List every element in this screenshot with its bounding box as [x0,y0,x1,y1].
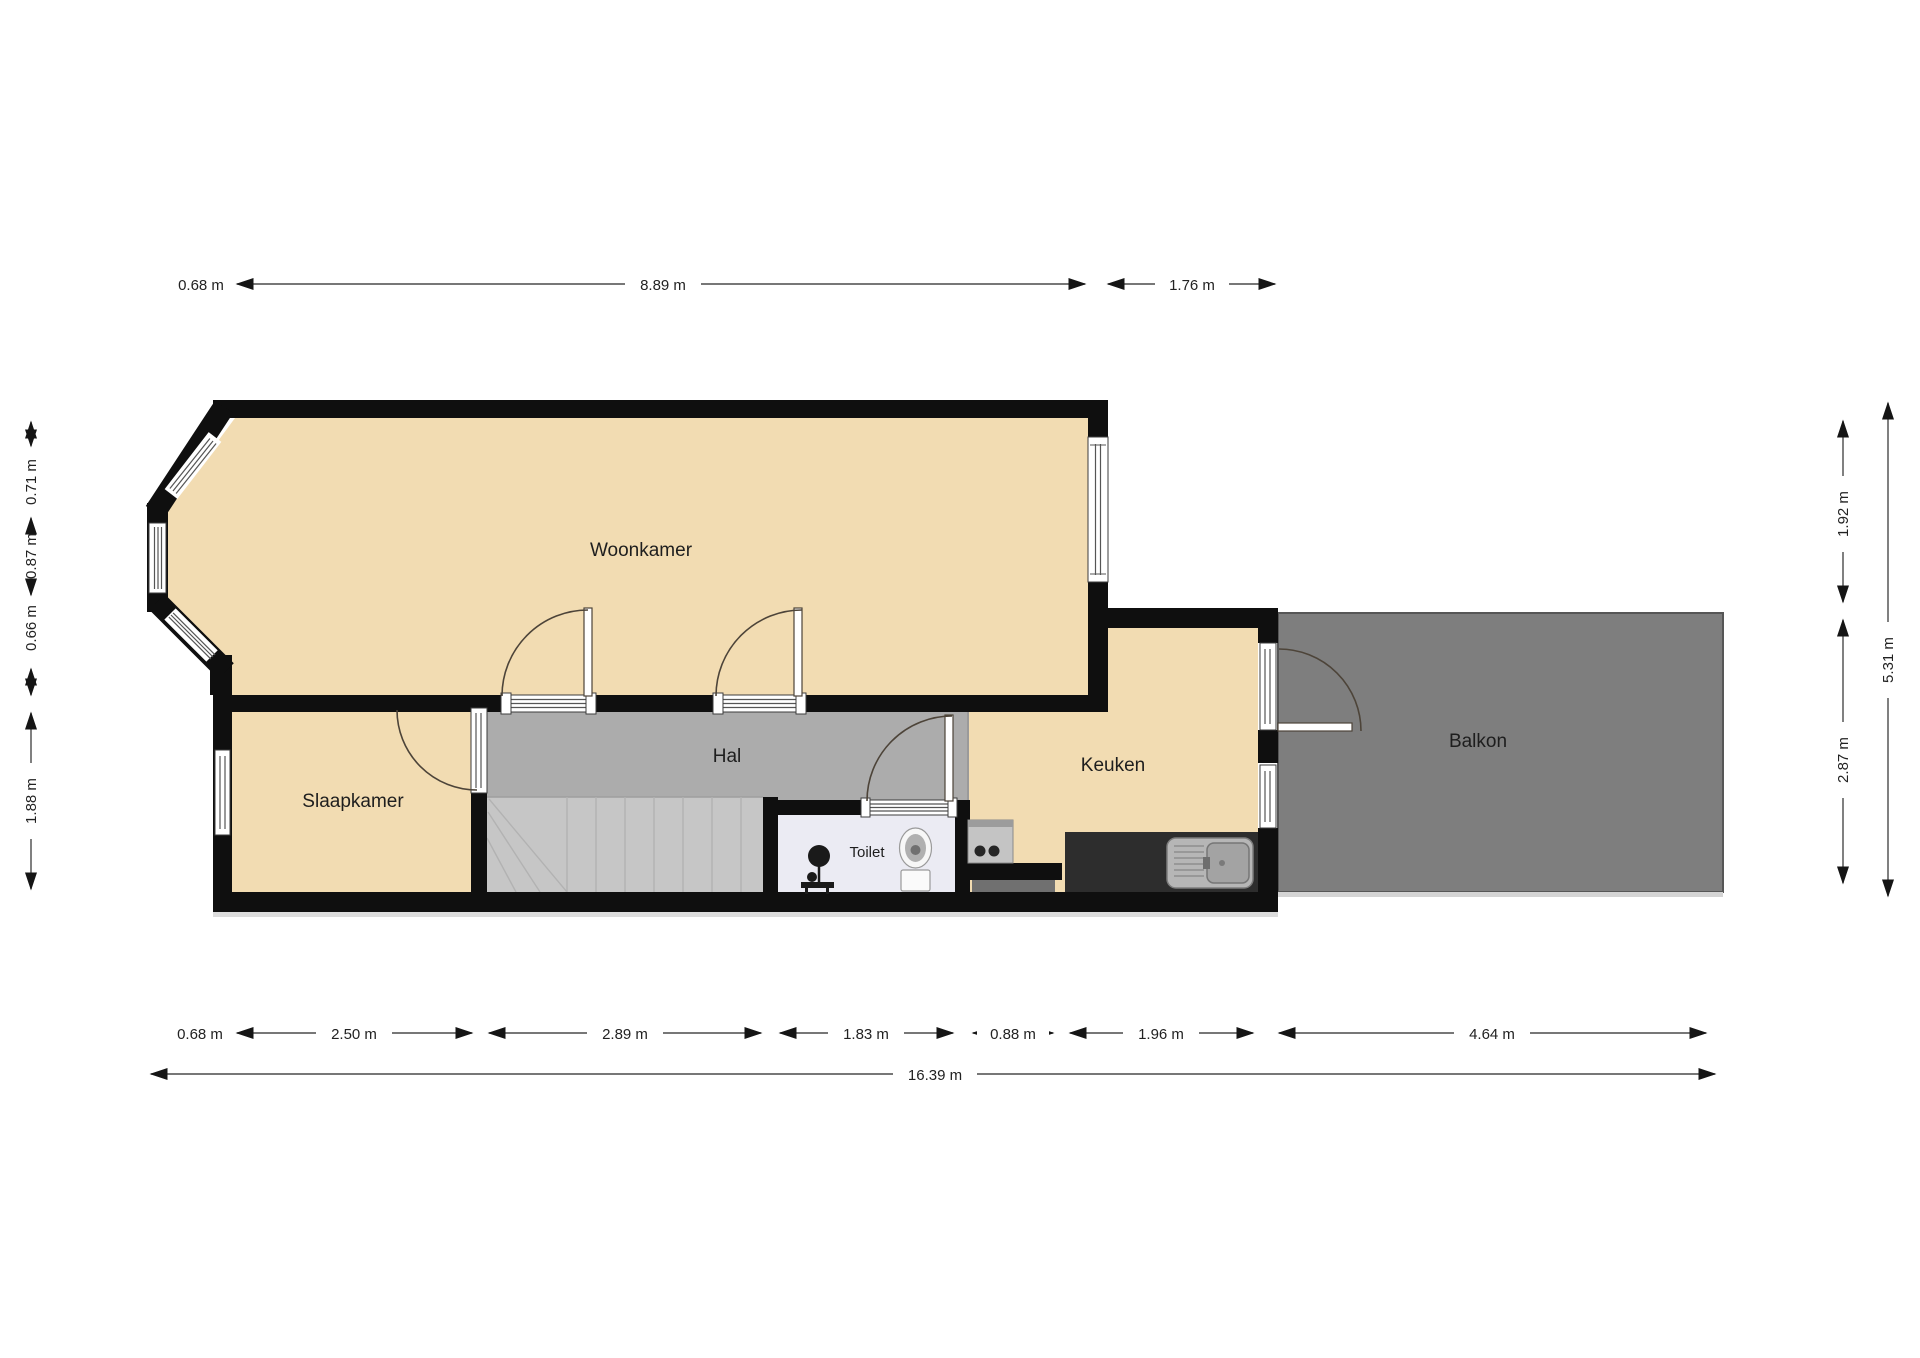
dim-label-total: 16.39 m [908,1067,962,1084]
room-label-balkon: Balkon [1449,731,1507,752]
dim-label: 1.76 m [1169,277,1215,294]
dim-label: 0.68 m [178,277,224,294]
dimensions-right: 1.92 m 2.87 m 5.31 m [1831,403,1900,896]
dim-label: 1.92 m [1835,491,1852,537]
room-label-keuken: Keuken [1081,755,1145,776]
dimensions-top: 0.68 m 8.89 m 1.76 m [178,272,1275,296]
dim-label: 1.96 m [1138,1026,1184,1043]
dim-label: 0.68 m [177,1026,223,1043]
wall-shadow [213,912,1278,917]
dim-label: 0.66 m [23,605,40,651]
dim-label: 4.64 m [1469,1026,1515,1043]
room-label-hal: Hal [713,746,742,767]
floor-plan-canvas: Woonkamer Slaapkamer Hal Toilet Keuken B… [0,0,1920,1358]
keuken-window [1260,765,1276,828]
balkon-floor [1278,613,1723,892]
dim-label: 0.87 m [23,533,40,579]
appliance-icon [968,820,1013,863]
room-label-slaapkamer: Slaapkamer [302,791,404,812]
dimensions-bottom: 0.68 m 2.50 m 2.89 m 1.83 m 0.88 m 1.96 … [151,1021,1715,1086]
entrance-threshold [972,880,1055,892]
dim-label: 8.89 m [640,277,686,294]
balcony-shadow [1278,892,1723,897]
dim-label: 2.89 m [602,1026,648,1043]
dim-label: 2.50 m [331,1026,377,1043]
toilet-bowl-icon [900,828,932,891]
dim-label: 0.71 m [23,459,40,505]
woonkamer-right-window [1088,437,1108,582]
dim-label: 1.83 m [843,1026,889,1043]
dim-label: 0.88 m [990,1026,1036,1043]
kitchen-sink-icon [1167,838,1253,888]
room-label-woonkamer: Woonkamer [590,540,693,561]
staircase [487,797,763,892]
slaapkamer-window [215,750,230,835]
dim-label: 2.87 m [1835,737,1852,783]
floor-plan: Woonkamer Slaapkamer Hal Toilet Keuken B… [0,0,1920,1358]
dimensions-left: 0.71 m 0.87 m 0.66 m 1.88 m [19,422,43,889]
room-label-toilet: Toilet [849,844,885,861]
dim-label: 5.31 m [1880,637,1897,683]
kitchen-counter [1065,832,1258,892]
dim-label: 1.88 m [23,778,40,824]
